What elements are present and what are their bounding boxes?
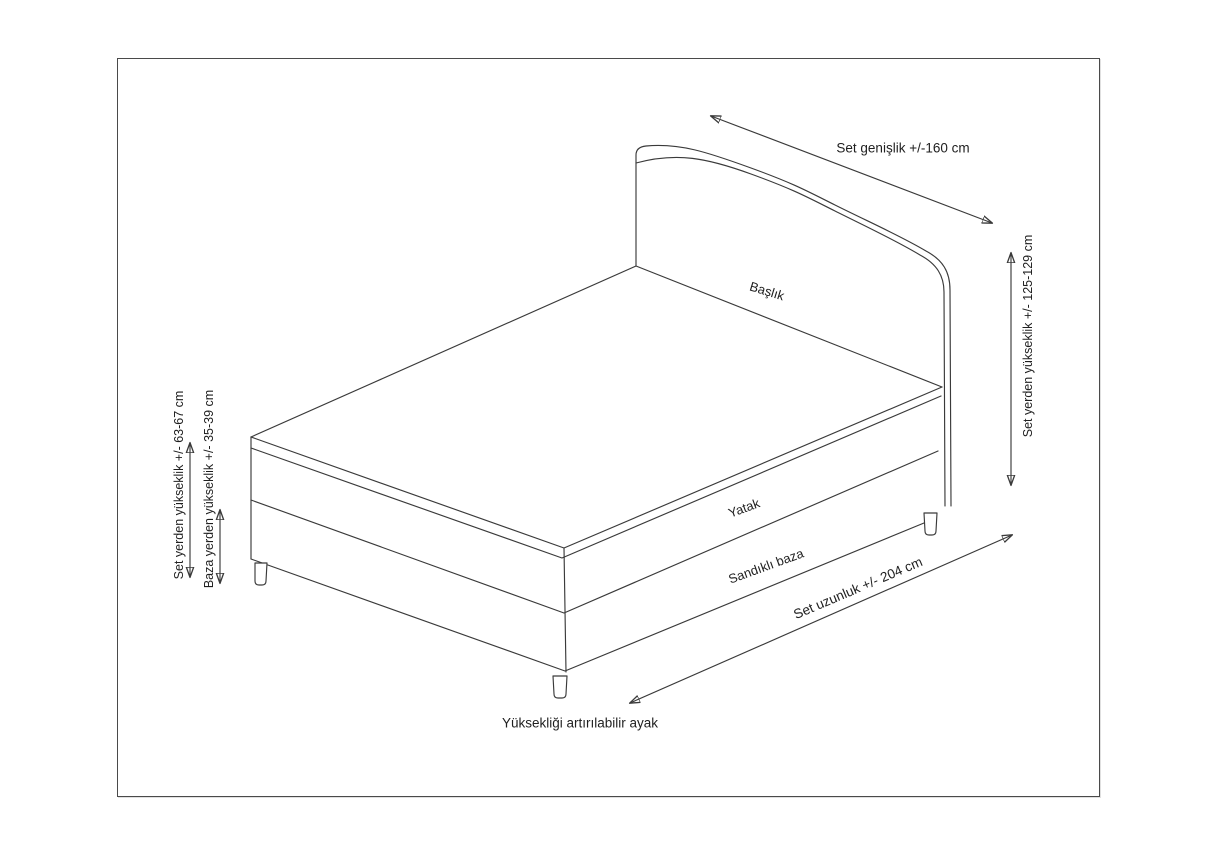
front-corner-edge: [564, 548, 566, 672]
set-width-label: Set genişlik +/-160 cm: [836, 141, 969, 156]
set-top-height-label: Set yerden yükseklik +/- 63-67 cm: [172, 391, 186, 580]
mattress-piping-line: [251, 396, 941, 558]
set-height-label: Set yerden yükseklik +/- 125-129 cm: [1021, 235, 1035, 438]
diagram-page: Set genişlik +/-160 cm Set yerden yüksek…: [0, 0, 1214, 858]
headboard-trim-line: [636, 157, 945, 506]
left-leg: [255, 563, 267, 585]
mattress-top-left-edge: [251, 266, 636, 437]
adjustable-foot-label: Yüksekliği artırılabilir ayak: [502, 716, 658, 731]
mattress-top-back-edge: [636, 266, 942, 387]
front-leg: [553, 676, 567, 698]
set-width-dimension-arrow: [711, 116, 992, 223]
headboard-outline: [636, 145, 951, 506]
mattress-top-front-edges: [251, 387, 942, 548]
base-height-label: Baza yerden yükseklik +/- 35-39 cm: [202, 390, 216, 588]
right-leg: [924, 513, 937, 535]
